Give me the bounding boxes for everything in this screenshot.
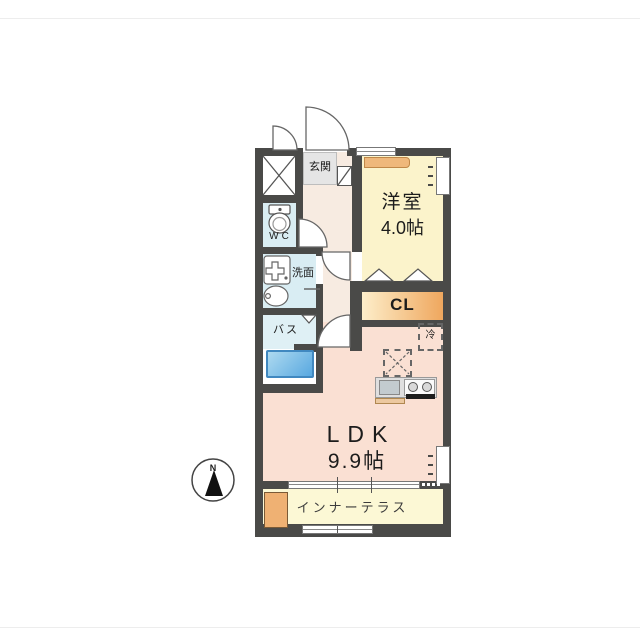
shoe-cabinet-diagonal [338,167,351,185]
compass-north-label: N [204,463,222,473]
western-room-label: 洋室 [362,192,443,214]
hall-door-arc [322,252,350,280]
genkan-label: 玄関 [303,161,337,174]
ldk-door-arc [318,315,350,347]
folding-door-icon [404,269,432,281]
utility-door-arc [273,126,297,150]
pipe-space-x-icon [263,156,295,195]
refrigerator-label: 冷 [418,330,443,342]
ldk-label: LDK [262,421,452,447]
ldk-size: 9.9帖 [262,450,452,474]
closet-label: CL [362,295,443,315]
washbasin-icon [264,286,288,306]
wc-door-arc [299,219,327,247]
floor-plan-canvas: 玄関 洋室 4.0帖 WC 洗面 バス CL 冷 LDK 9.9帖 インナーテラ… [0,0,640,640]
western-room-size: 4.0帖 [362,218,443,239]
washer-pan-icon [264,256,290,284]
washroom-label: 洗面 [288,267,318,280]
symbol-overlay [0,0,640,640]
bath-label: バス [262,324,310,337]
toilet-icon [269,205,290,233]
wc-label: WC [262,231,296,243]
folding-door-icon [365,269,393,281]
washer-x-icon [386,352,409,374]
terrace-label: インナーテラス [262,501,443,516]
entrance-door-arc [306,107,349,150]
bath-door-icon [302,315,316,323]
